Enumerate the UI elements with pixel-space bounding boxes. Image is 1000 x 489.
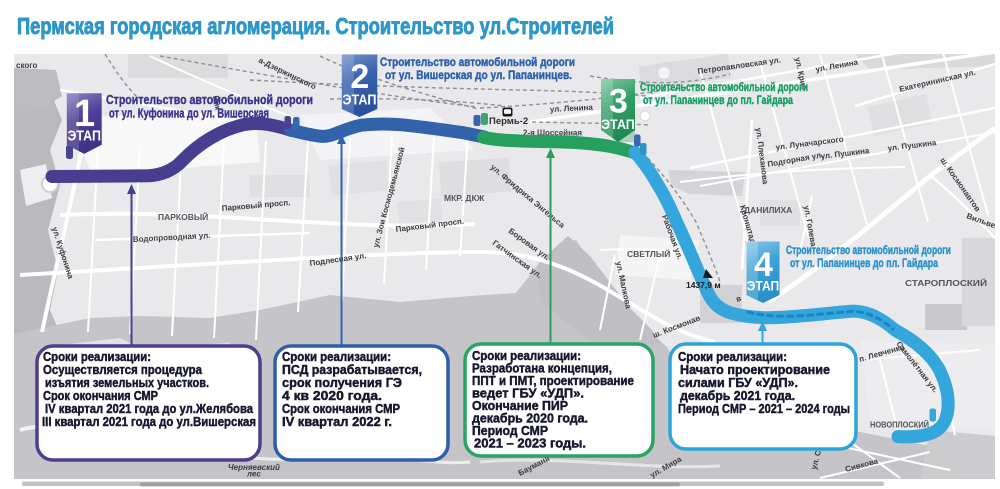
- svg-text:III квартал 2021 года до ул.Ви: III квартал 2021 года до ул.Вишерская: [42, 415, 256, 429]
- svg-text:ЭТАП: ЭТАП: [67, 128, 101, 145]
- svg-text:ЭТАП: ЭТАП: [601, 116, 635, 132]
- svg-text:Срок окончания СМР: Срок окончания СМР: [43, 389, 158, 403]
- svg-text:Строительство автомобильной до: Строительство автомобильной дороги: [786, 245, 951, 257]
- svg-text:ПСД разрабатывается,: ПСД разрабатывается,: [282, 363, 422, 377]
- svg-text:1437,9 м: 1437,9 м: [686, 280, 721, 290]
- svg-text:Сроки реализации:: Сроки реализации:: [282, 350, 391, 364]
- svg-text:СТАРОПЛОСКИЙ: СТАРОПЛОСКИЙ: [905, 277, 987, 288]
- svg-text:IV квартал 2021 года до ул.Жел: IV квартал 2021 года до ул.Желябова: [45, 402, 254, 416]
- svg-text:изъятия земельных участков.: изъятия земельных участков.: [45, 376, 209, 390]
- svg-text:ЭТАП: ЭТАП: [343, 93, 377, 109]
- svg-text:декабрь 2021 года.: декабрь 2021 года.: [680, 389, 795, 403]
- svg-text:2021 – 2023 годы.: 2021 – 2023 годы.: [474, 437, 586, 451]
- svg-text:Пермская городская агломерация: Пермская городская агломерация. Строител…: [17, 13, 614, 39]
- svg-text:ДАНИЛИХА: ДАНИЛИХА: [744, 205, 792, 215]
- svg-text:Пермь-2: Пермь-2: [489, 116, 528, 127]
- svg-text:от ул. Папанинцев до пл. Гайда: от ул. Папанинцев до пл. Гайдара: [790, 258, 938, 270]
- svg-text:НОВОПЛОСКИЙ: НОВОПЛОСКИЙ: [870, 419, 929, 430]
- svg-text:Срок окончания СМР: Срок окончания СМР: [282, 402, 400, 416]
- svg-text:от ул. Папанинцев до пл. Гайда: от ул. Папанинцев до пл. Гайдара: [643, 95, 793, 107]
- svg-text:ского: ского: [16, 61, 37, 70]
- svg-text:от ул. Куфонина до ул. Вишерск: от ул. Куфонина до ул. Вишерская: [109, 107, 269, 121]
- svg-text:Строительство автомобильной до: Строительство автомобильной дороги: [640, 82, 808, 94]
- svg-text:срок получения ГЭ: срок получения ГЭ: [282, 376, 402, 390]
- svg-text:МКР. ДКЖ: МКР. ДКЖ: [444, 193, 485, 203]
- svg-text:IV квартал 2022 г.: IV квартал 2022 г.: [282, 415, 392, 429]
- svg-text:Сроки реализации:: Сроки реализации:: [43, 350, 151, 364]
- svg-text:от ул. Вишерская до ул. Папани: от ул. Вишерская до ул. Папанинцев.: [385, 70, 572, 82]
- svg-text:силами ГБУ «УДП».: силами ГБУ «УДП».: [678, 376, 798, 390]
- svg-text:Строительство автомобильной до: Строительство автомобильной дороги: [380, 57, 575, 69]
- svg-text:Период СМР – 2021 – 2024 годы: Период СМР – 2021 – 2024 годы: [678, 402, 850, 416]
- svg-text:СВЕТЛЫЙ: СВЕТЛЫЙ: [627, 248, 670, 259]
- svg-text:лес: лес: [246, 470, 261, 479]
- svg-text:4 кв 2020 года.: 4 кв 2020 года.: [282, 389, 382, 403]
- svg-text:Строительство автомобильной до: Строительство автомобильной дороги: [106, 93, 313, 107]
- svg-text:Сроки реализации:: Сроки реализации:: [678, 350, 787, 364]
- svg-text:ЭТАП: ЭТАП: [747, 278, 780, 294]
- svg-text:ПАРКОВЫЙ: ПАРКОВЫЙ: [158, 211, 208, 222]
- svg-text:Осуществляется процедура: Осуществляется процедура: [43, 363, 203, 377]
- svg-text:2: 2: [350, 58, 369, 96]
- svg-text:3: 3: [609, 83, 628, 121]
- svg-text:Начато проектирование: Начато проектирование: [680, 363, 830, 377]
